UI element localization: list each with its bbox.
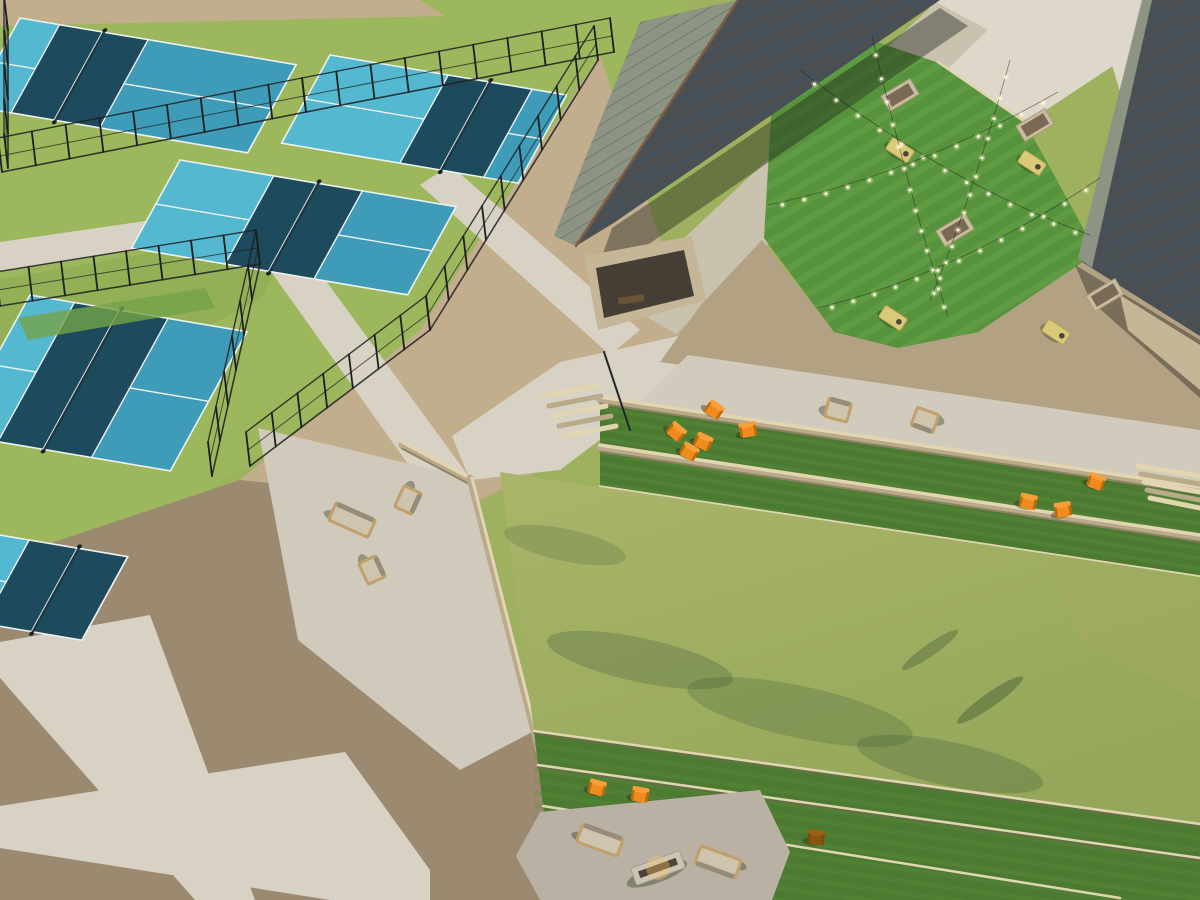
string-light-bulb xyxy=(1021,227,1024,230)
string-light-bulb xyxy=(932,292,935,295)
string-light-bulb xyxy=(813,83,816,86)
string-light-bulb xyxy=(962,211,965,214)
string-light-bulb xyxy=(846,186,849,189)
string-light-bulb xyxy=(1030,213,1033,216)
string-light-bulb xyxy=(968,193,971,196)
string-light-bulb xyxy=(979,249,982,252)
string-light-bulb xyxy=(937,287,940,290)
string-light-bulb xyxy=(1020,113,1023,116)
string-light-bulb xyxy=(936,269,939,272)
string-light-bulb xyxy=(974,175,977,178)
string-light-bulb xyxy=(868,179,871,182)
string-light-bulb xyxy=(998,124,1001,127)
string-light-bulb xyxy=(1042,102,1045,105)
string-light-bulb xyxy=(944,261,947,264)
string-light-bulb xyxy=(1063,202,1066,205)
string-light-bulb xyxy=(874,53,877,56)
string-light-bulb xyxy=(878,129,881,132)
string-light-bulb xyxy=(831,306,834,309)
string-light-bulb xyxy=(943,169,946,172)
string-light-bulb xyxy=(1074,231,1077,234)
string-light-bulb xyxy=(956,228,959,231)
string-light-bulb xyxy=(987,192,990,195)
string-light-bulb xyxy=(980,156,983,159)
string-light-bulb xyxy=(852,300,855,303)
string-light-bulb xyxy=(886,100,889,103)
aerial-rendering-pickleball-club xyxy=(0,0,1200,900)
string-light-bulb xyxy=(992,117,995,120)
string-light-bulb xyxy=(880,77,883,80)
string-light-bulb xyxy=(950,245,953,248)
string-light-bulb xyxy=(977,135,980,138)
string-light-bulb xyxy=(986,137,989,140)
string-light-bulb xyxy=(1009,203,1012,206)
string-light-bulb xyxy=(926,249,929,252)
string-light-bulb xyxy=(957,259,960,262)
string-light-bulb xyxy=(1052,222,1055,225)
string-light-bulb xyxy=(891,123,894,126)
string-light-bulb xyxy=(931,268,934,271)
string-light-bulb xyxy=(955,145,958,148)
string-light-bulb xyxy=(803,198,806,201)
string-light-bulb xyxy=(890,171,893,174)
string-light-bulb xyxy=(915,278,918,281)
string-light-bulb xyxy=(965,181,968,184)
string-light-bulb xyxy=(914,209,917,212)
string-light-bulb xyxy=(824,192,827,195)
string-light-bulb xyxy=(781,203,784,206)
string-light-bulb xyxy=(911,163,914,166)
scene-canvas xyxy=(0,0,1200,900)
string-light-bulb xyxy=(1000,239,1003,242)
string-light-bulb xyxy=(1042,215,1045,218)
string-light-bulb xyxy=(1084,189,1087,192)
string-light-bulb xyxy=(873,293,876,296)
string-light-bulb xyxy=(903,167,906,170)
string-light-bulb xyxy=(856,114,859,117)
string-light-bulb xyxy=(894,286,897,289)
string-light-bulb xyxy=(998,97,1001,100)
string-light-bulb xyxy=(897,145,900,148)
string-light-bulb xyxy=(908,188,911,191)
string-light-bulb xyxy=(920,229,923,232)
string-light-bulb xyxy=(1004,76,1007,79)
string-light-bulb xyxy=(943,305,946,308)
string-light-bulb xyxy=(933,154,936,157)
string-light-bulb xyxy=(835,99,838,102)
string-light-bulb xyxy=(938,277,941,280)
